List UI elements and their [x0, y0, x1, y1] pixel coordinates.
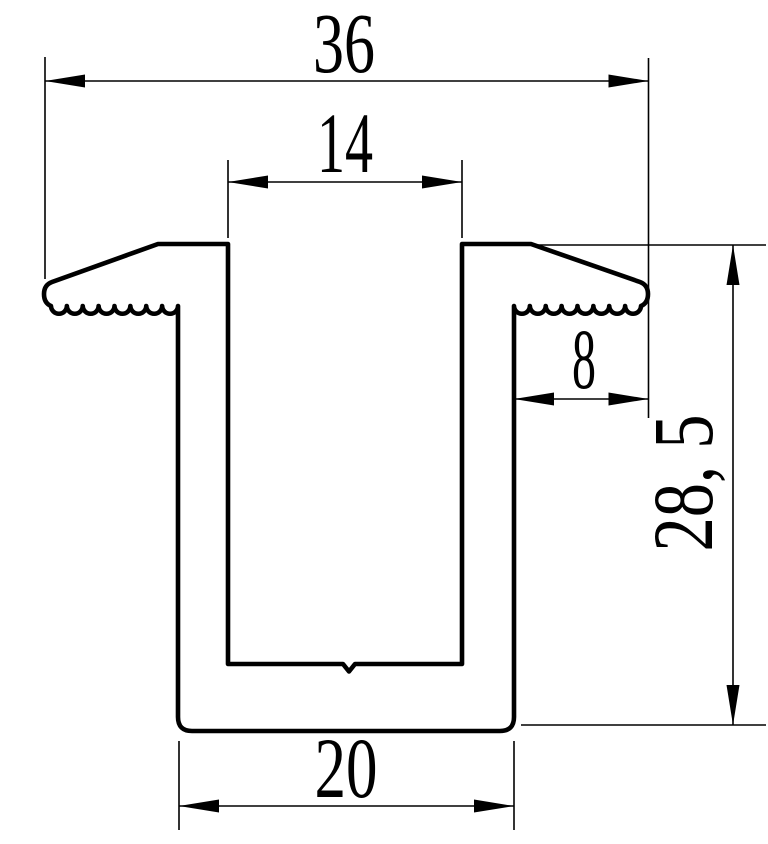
- dim-label-flange-width: 8: [572, 311, 596, 407]
- dim-label-slot-width: 14: [317, 95, 373, 191]
- technical-drawing: 36 14 8 28, 5: [0, 0, 768, 844]
- dim-label-overall-height: 28, 5: [635, 415, 731, 552]
- dim-label-base-width: 20: [315, 720, 378, 816]
- drawing-canvas: 36 14 8 28, 5: [0, 0, 768, 844]
- dim-label-overall-width: 36: [313, 0, 375, 91]
